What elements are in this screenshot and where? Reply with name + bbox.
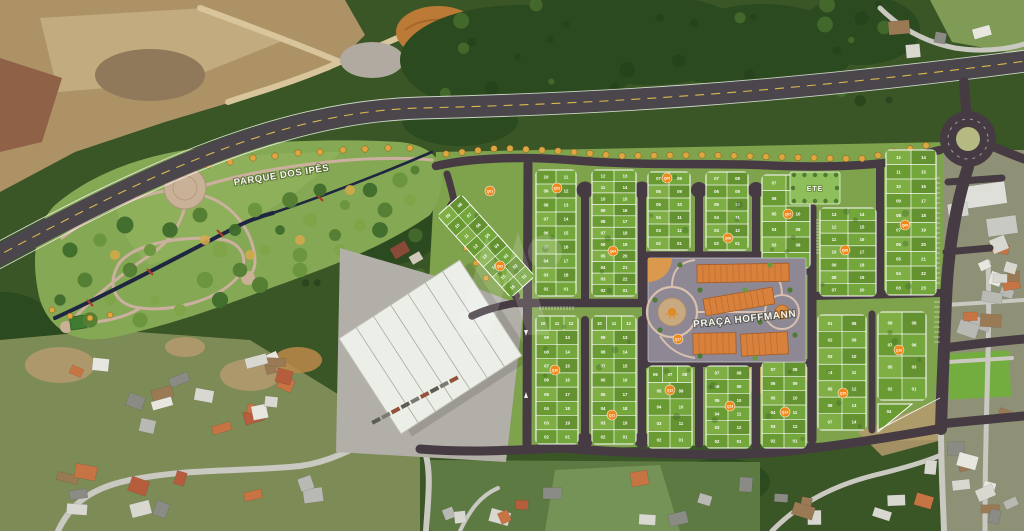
quadra-badge-Q16: Q16 [894, 345, 904, 355]
lot-number: 06 [772, 196, 777, 201]
lot-number: 05 [771, 396, 776, 401]
lot-number: 17 [921, 198, 926, 203]
lot-number: 12 [564, 189, 569, 194]
lot-number: 07 [544, 217, 549, 222]
quadra-badge-label: Q06 [725, 236, 732, 240]
lot-number: 05 [828, 387, 833, 392]
lot-number: 10 [544, 175, 549, 180]
lot-number: 06 [714, 189, 719, 194]
block-Q16: 0908070605030201 [878, 312, 926, 400]
lot-number: 08 [544, 203, 549, 208]
quadra-badge-Q10: Q10 [550, 365, 560, 375]
lot-number: 01 [564, 287, 569, 292]
lot-number: 19 [623, 242, 628, 247]
lot-number: 07 [656, 176, 661, 181]
lot-number: 06 [828, 403, 833, 408]
block-Q05: 070806090510041103120201 [648, 172, 690, 250]
lot-number: 17 [860, 250, 865, 255]
lot-number: 07 [715, 371, 720, 376]
lot-number: 04 [896, 271, 901, 276]
lot-number: 09 [679, 388, 684, 393]
lot-number: 05 [601, 254, 606, 259]
lot-number: 07 [896, 227, 901, 232]
block-Q10: 10111209130814071506160517041803190201 [536, 316, 578, 444]
lot-number: 03 [656, 228, 661, 233]
lot-number: 14 [565, 349, 570, 354]
lot-number: 10 [832, 250, 837, 255]
lot-number: 16 [565, 378, 570, 383]
quadra-badge-label: Q16 [896, 348, 903, 352]
lot-number: 05 [896, 256, 901, 261]
lot-number: 12 [677, 228, 682, 233]
lot-number: 10 [597, 321, 602, 326]
block-Q14: 070806090510041103120201 [762, 362, 806, 448]
lot-number: 09 [544, 189, 549, 194]
lot-number: 11 [679, 421, 684, 426]
quadra-badge-label: Q13 [727, 404, 734, 408]
quadra-badge-label: Q08 [842, 248, 849, 252]
lot-number: 09 [601, 335, 606, 340]
quadra-badge-Q06: Q06 [723, 233, 733, 243]
lot-number: 12 [601, 173, 606, 178]
lot-number: 02 [657, 438, 662, 443]
lot-number: 02 [714, 241, 719, 246]
quadra-badge-Q11: Q11 [607, 410, 617, 420]
lot-number: 13 [564, 203, 569, 208]
lot-number: 11 [737, 412, 742, 417]
lot-number: 04 [657, 405, 662, 410]
quadra-badge-Q15: Q15 [838, 388, 848, 398]
lot-number: 03 [601, 277, 606, 282]
lot-number: 04 [656, 215, 661, 220]
quadra-badge-label: Q03 [554, 186, 561, 190]
lot-number: 16 [921, 184, 926, 189]
lot-number: 16 [623, 208, 628, 213]
quadra-badge-label: Q10 [552, 368, 559, 372]
lot-number: 13 [852, 403, 857, 408]
lot-number: 02 [601, 288, 606, 293]
lot-number: 04 [771, 410, 776, 415]
lot-number: 12 [735, 228, 740, 233]
lot-number: 01 [735, 241, 740, 246]
lot-number: 20 [860, 287, 865, 292]
quadra-badge-Q03: Q03 [552, 183, 562, 193]
lot-number: 02 [715, 439, 720, 444]
masterplan-aerial-map: 0908100711061205130414031502160110110912… [0, 0, 1024, 531]
lot-number: 14 [852, 419, 857, 424]
quadra-badge-Q14: Q14 [780, 407, 790, 417]
lot-number: 06 [896, 242, 901, 247]
lot-number: 18 [565, 406, 570, 411]
lot-number: 09 [793, 381, 798, 386]
lot-number: 10 [677, 202, 682, 207]
lot-number: 08 [601, 219, 606, 224]
lot-number: 02 [888, 387, 893, 392]
lot-number: 18 [564, 273, 569, 278]
lot-number: 07 [544, 363, 549, 368]
quadra-badge-Q07: Q07 [783, 209, 793, 219]
block-Q11: 10111209130814071506160517041803190201 [592, 316, 636, 444]
quadra-badge-Q04: Q04 [608, 246, 618, 256]
ete-label: ETE [807, 186, 824, 193]
lot-number: 04 [887, 409, 892, 414]
lot-number: 19 [921, 227, 926, 232]
lot-number: 11 [564, 175, 569, 180]
lot-number: 01 [912, 387, 917, 392]
lot-number: 07 [772, 180, 777, 185]
lot-number: 04 [715, 412, 720, 417]
block-Q12: 0607080509041003110201 [648, 366, 692, 448]
lot-number: 09 [896, 198, 901, 203]
quadra-badge-label: Q11 [609, 413, 615, 417]
lot-number: 02 [601, 435, 606, 440]
lot-number: 18 [623, 406, 628, 411]
lot-number: 09 [852, 337, 857, 342]
plaza-building [693, 333, 736, 355]
lot-number: 13 [565, 335, 570, 340]
lot-number: 05 [888, 365, 893, 370]
lot-number: 01 [623, 435, 628, 440]
lot-number: 05 [772, 211, 777, 216]
lot-number: 06 [544, 378, 549, 383]
lot-number: 05 [656, 202, 661, 207]
lot-number: 05 [544, 392, 549, 397]
lot-number: 17 [565, 392, 570, 397]
lot-number: 08 [682, 372, 687, 377]
lot-number: 08 [852, 321, 857, 326]
lot-number: 22 [921, 271, 926, 276]
lot-number: 11 [601, 185, 606, 190]
lot-number: 02 [771, 439, 776, 444]
lot-number: 07 [828, 419, 833, 424]
quadra-badge-label: Q07 [785, 212, 792, 216]
lot-number: 19 [860, 275, 865, 280]
quadra-badge-label: Q12 [667, 388, 674, 392]
lot-number: 17 [564, 259, 569, 264]
quadra-badge-label: Q15 [840, 391, 847, 395]
lot-number: 09 [601, 208, 606, 213]
lot-number: 12 [626, 321, 631, 326]
lot-number: 06 [656, 189, 661, 194]
lot-number: 15 [623, 196, 628, 201]
lot-number: 12 [832, 225, 837, 230]
lot-number: 03 [772, 242, 777, 247]
quadra-badge-label: Q09 [902, 223, 909, 227]
lot-number: 08 [896, 213, 901, 218]
lot-number: 10 [796, 211, 801, 216]
lot-number: 01 [565, 435, 570, 440]
quadra-badge-label: Q02 [497, 264, 504, 268]
lot-number: 06 [912, 343, 917, 348]
lot-number: 08 [832, 275, 837, 280]
lot-number: 09 [737, 384, 742, 389]
quadra-badge-Q12: Q12 [665, 385, 675, 395]
lot-number: 16 [564, 245, 569, 250]
quadra-badge-Q09: Q09 [900, 220, 910, 230]
lot-number: 06 [771, 381, 776, 386]
lot-number: 19 [565, 420, 570, 425]
lot-number: 11 [896, 169, 901, 174]
quadra-badge-Q13: Q13 [725, 401, 735, 411]
quadra-badge-Q01: Q01 [485, 186, 495, 196]
lot-number: 16 [623, 378, 628, 383]
lot-number: 11 [677, 215, 682, 220]
quadra-badge-label: Q05 [664, 176, 671, 180]
lot-number: 05 [657, 388, 662, 393]
lot-number: 09 [832, 262, 837, 267]
lot-number: 18 [921, 213, 926, 218]
lot-number: 22 [623, 277, 628, 282]
lot-number: 02 [544, 287, 549, 292]
lot-number: 05 [601, 392, 606, 397]
lot-number: 06 [653, 372, 658, 377]
lot-number: 06 [601, 378, 606, 383]
lot-number: 23 [921, 285, 926, 290]
lot-number: 03 [771, 424, 776, 429]
plaza-building [697, 263, 789, 283]
lot-number: 03 [896, 285, 901, 290]
lot-number: 04 [601, 406, 606, 411]
lot-number: 18 [860, 262, 865, 267]
lot-number: 04 [601, 265, 606, 270]
lot-number: 10 [601, 196, 606, 201]
lot-number: 09 [888, 321, 893, 326]
block-Q09: 1214111510160917081807190620052104220323 [886, 150, 936, 295]
lot-number: 12 [793, 424, 798, 429]
lot-number: 09 [735, 189, 740, 194]
lot-number: 08 [793, 367, 798, 372]
lot-number: 15 [860, 225, 865, 230]
lot-number: 19 [623, 420, 628, 425]
lot-number: 09 [796, 227, 801, 232]
lot-number: 10 [852, 354, 857, 359]
lot-number: 13 [623, 173, 628, 178]
lot-number: 03 [715, 425, 720, 430]
lot-number: 11 [832, 237, 837, 242]
block-Q15: 0108020903100411051206130714 [818, 315, 866, 430]
quadra-badge-Q05: Q05 [662, 173, 672, 183]
lot-number: 21 [623, 265, 628, 270]
lot-number: 10 [679, 405, 684, 410]
lot-number: 15 [623, 363, 628, 368]
lot-number: 01 [793, 439, 798, 444]
lot-number: 14 [623, 185, 628, 190]
lot-number: 15 [565, 363, 570, 368]
lot-number: 15 [564, 231, 569, 236]
quadra-badge-Q08: Q08 [840, 245, 850, 255]
lot-number: 21 [921, 256, 926, 261]
lot-number: 10 [737, 398, 742, 403]
lot-number: 07 [601, 231, 606, 236]
quadra-badge-label: Q17 [675, 337, 682, 341]
lot-number: 03 [544, 273, 549, 278]
lot-number: 11 [852, 370, 857, 375]
lot-number: 04 [772, 227, 777, 232]
lot-number: 02 [656, 241, 661, 246]
lot-number: 16 [860, 237, 865, 242]
lot-number: 09 [544, 335, 549, 340]
lot-number: 06 [544, 231, 549, 236]
lot-number: 02 [544, 435, 549, 440]
lot-number: 14 [860, 212, 865, 217]
lot-number: 02 [828, 337, 833, 342]
lot-number: 10 [793, 396, 798, 401]
lot-number: 07 [771, 367, 776, 372]
lot-number: 03 [912, 365, 917, 370]
lot-number: 12 [737, 425, 742, 430]
lot-number: 08 [735, 176, 740, 181]
lot-number: 06 [601, 242, 606, 247]
lot-number: 01 [623, 288, 628, 293]
lot-number: 05 [715, 398, 720, 403]
lot-number: 14 [564, 217, 569, 222]
lot-number: 08 [796, 242, 801, 247]
lot-number: 01 [737, 439, 742, 444]
lot-number: 12 [569, 321, 574, 326]
lot-number: 03 [828, 354, 833, 359]
lot-number: 08 [912, 321, 917, 326]
lot-number: 01 [679, 438, 684, 443]
lot-number: 12 [896, 155, 901, 160]
quadra-badge-label: Q14 [782, 410, 789, 414]
lot-number: 10 [896, 184, 901, 189]
lot-number: 05 [714, 202, 719, 207]
lot-number: 03 [714, 228, 719, 233]
lot-number: 14 [623, 349, 628, 354]
lot-number: 08 [737, 371, 742, 376]
lot-number: 03 [601, 420, 606, 425]
lot-number: 11 [555, 321, 560, 326]
quadra-badge-Q17: Q17 [673, 334, 683, 344]
lot-number: 08 [677, 176, 682, 181]
lot-number: 03 [544, 420, 549, 425]
lot-number: 18 [623, 231, 628, 236]
lot-number: 04 [714, 215, 719, 220]
lot-number: 11 [612, 321, 617, 326]
lot-number: 01 [828, 321, 833, 326]
quadra-badge-label: Q04 [610, 249, 617, 253]
lot-number: 11 [793, 410, 798, 415]
lot-number: 04 [544, 406, 549, 411]
lot-number: 17 [623, 219, 628, 224]
lot-number: 13 [832, 212, 837, 217]
lot-number: 01 [677, 241, 682, 246]
lot-number: 17 [623, 392, 628, 397]
lot-number: 07 [714, 176, 719, 181]
lot-number: 14 [921, 155, 926, 160]
plaza-building [740, 332, 788, 356]
lot-number: 20 [623, 254, 628, 259]
lot-number: 12 [852, 387, 857, 392]
block-Q04: 1213111410150916081707180619052004210322… [592, 170, 636, 296]
lot-number: 15 [921, 169, 926, 174]
lot-number: 08 [601, 349, 606, 354]
lot-number: 07 [832, 287, 837, 292]
lot-number: 09 [677, 189, 682, 194]
lot-number: 20 [921, 242, 926, 247]
lot-number: 03 [657, 421, 662, 426]
lot-number: 13 [623, 335, 628, 340]
quadra-badge-label: Q01 [487, 189, 494, 193]
